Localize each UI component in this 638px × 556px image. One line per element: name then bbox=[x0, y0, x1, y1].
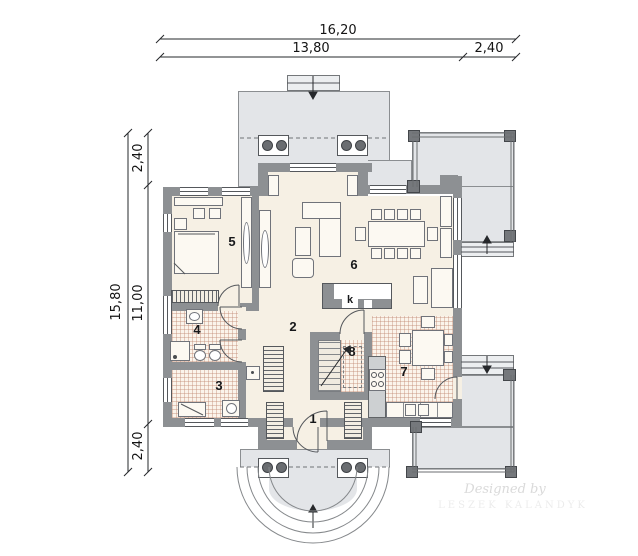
window-west-utility bbox=[163, 378, 172, 402]
dim-top-side: 2,40 bbox=[461, 42, 517, 56]
terrace-tr-post-ne bbox=[504, 130, 516, 142]
dim-top-total: 16,20 bbox=[310, 24, 366, 38]
floor-plan-canvas: 1 2 3 4 5 6 7 8 k 16,20 13,80 2,40 15,80… bbox=[0, 0, 638, 556]
room-label-8: 8 bbox=[344, 345, 360, 359]
terrace-top-right-porch-strip bbox=[368, 160, 412, 187]
utility-counter bbox=[178, 402, 206, 417]
tall-cabinet-living-door bbox=[261, 230, 269, 268]
front-door-opening bbox=[297, 440, 327, 449]
terrace-door-east bbox=[453, 198, 462, 240]
terrace-br-post-w bbox=[410, 421, 422, 433]
porch-column bbox=[262, 462, 273, 473]
dim-left-bottom: 2,40 bbox=[132, 417, 146, 475]
porch-column bbox=[276, 462, 287, 473]
shower-drain bbox=[173, 355, 177, 359]
door-opening-stairblock bbox=[340, 332, 364, 340]
dining-chair-left bbox=[355, 227, 366, 241]
wall-bath-utility bbox=[163, 362, 246, 370]
tv-stand bbox=[413, 276, 428, 304]
terrace-br-post-sw bbox=[406, 466, 418, 478]
floor-bay bbox=[268, 172, 358, 196]
terrace-top-right-steps bbox=[461, 242, 514, 257]
dim-left-top: 2,40 bbox=[132, 129, 146, 187]
radiator-right bbox=[347, 175, 358, 196]
wall-cabinet-2 bbox=[440, 228, 452, 258]
terrace-door-south-bay bbox=[290, 163, 336, 172]
nightstand-1 bbox=[193, 208, 205, 219]
door-opening-bedroom bbox=[218, 303, 240, 311]
room-label-4: 4 bbox=[189, 323, 205, 337]
room-label-6: 6 bbox=[346, 258, 362, 272]
wall-exterior-top-bedroom bbox=[163, 187, 268, 196]
window-west-bedroom bbox=[163, 214, 172, 232]
dining-chair-b3 bbox=[397, 248, 408, 259]
corner-sofa-top bbox=[302, 202, 341, 219]
kitchen-sink-bowl-2 bbox=[418, 404, 429, 416]
kitchen-chair-r2 bbox=[444, 351, 453, 363]
vestibule-closet-left bbox=[266, 402, 284, 439]
porch-column bbox=[355, 462, 366, 473]
window-south-utility-1 bbox=[185, 418, 214, 427]
tall-cabinet-bedroom-door bbox=[243, 222, 250, 264]
room-label-7: 7 bbox=[396, 365, 412, 379]
wall-stairblock-bottom bbox=[310, 392, 372, 400]
fireplace-left-mass bbox=[323, 284, 334, 308]
terrace-bottom-right-lower bbox=[412, 427, 514, 469]
terrace-br-post-ne bbox=[503, 369, 516, 381]
bed bbox=[174, 231, 219, 274]
fireplace-notch-2 bbox=[364, 300, 372, 308]
water-heater-dot bbox=[251, 371, 254, 374]
bedroom-wardrobe bbox=[171, 290, 219, 303]
kitchen-chair-l2 bbox=[399, 350, 411, 364]
armchair bbox=[292, 258, 314, 278]
terrace-tr-post-sw bbox=[407, 180, 420, 193]
window-bedroom-north-1 bbox=[180, 187, 208, 196]
room-label-1: 1 bbox=[305, 412, 321, 426]
porch-column bbox=[341, 140, 352, 151]
dining-chair-t4 bbox=[410, 209, 421, 220]
dining-chair-t1 bbox=[371, 209, 382, 220]
terrace-top-right bbox=[412, 132, 514, 187]
room-label-2: 2 bbox=[285, 320, 301, 334]
bidet-bowl bbox=[209, 350, 221, 361]
dining-chair-right bbox=[427, 227, 438, 241]
stove bbox=[369, 369, 386, 391]
dining-chair-t2 bbox=[384, 209, 395, 220]
dim-left-total: 15,80 bbox=[110, 273, 124, 331]
small-sofa bbox=[431, 268, 453, 308]
door-opening-utility bbox=[238, 340, 246, 362]
terrace-br-post-se bbox=[505, 466, 517, 478]
dining-chair-b4 bbox=[410, 248, 421, 259]
terrace-bottom-right-upper bbox=[461, 375, 514, 427]
wall-cabinet-1 bbox=[440, 196, 452, 227]
toilet-bowl bbox=[194, 350, 206, 361]
dining-chair-b2 bbox=[384, 248, 395, 259]
door-opening-bathroom bbox=[238, 307, 246, 329]
dining-chair-t3 bbox=[397, 209, 408, 220]
porch-column bbox=[355, 140, 366, 151]
fireplace-label: k bbox=[342, 294, 358, 307]
wall-stairblock-left bbox=[310, 332, 318, 400]
kitchen-chair-l1 bbox=[399, 333, 411, 347]
porch-column bbox=[341, 462, 352, 473]
coffee-table bbox=[295, 227, 311, 256]
kitchen-chair-bottom bbox=[421, 368, 435, 380]
terrace-tr-post-nw bbox=[408, 130, 420, 142]
kitchen-table bbox=[412, 330, 444, 366]
dining-table bbox=[368, 221, 425, 247]
kitchen-chair-top bbox=[421, 316, 435, 328]
window-south-utility-2 bbox=[221, 418, 248, 427]
vestibule-closet-right bbox=[344, 402, 362, 439]
bathroom-sink-basin bbox=[189, 312, 200, 321]
porch-column bbox=[276, 140, 287, 151]
corner-sofa-side bbox=[319, 218, 341, 257]
door-opening-kitchen-terrace bbox=[453, 377, 462, 399]
terrace-door-northeast bbox=[370, 185, 406, 194]
kitchen-sink-bowl-1 bbox=[405, 404, 416, 416]
porch-column bbox=[262, 140, 273, 151]
dim-top-main: 13,80 bbox=[283, 42, 339, 56]
dim-left-main: 11,00 bbox=[132, 274, 146, 332]
terrace-tr-post-se bbox=[504, 230, 516, 242]
washing-machine-drum bbox=[226, 403, 237, 414]
nightstand-2 bbox=[209, 208, 221, 219]
wall-bedroom-living bbox=[252, 196, 259, 311]
bedroom-dresser bbox=[174, 197, 223, 206]
window-south-kitchen bbox=[420, 418, 451, 427]
window-east bbox=[453, 255, 462, 308]
staircase bbox=[318, 340, 341, 392]
hall-closet bbox=[263, 346, 284, 392]
watermark-designer-name: LESZEK KALANDYK bbox=[408, 500, 618, 512]
entry-steps-top bbox=[287, 75, 340, 91]
watermark-designed-by: Designed by bbox=[420, 483, 590, 496]
kitchen-chair-r1 bbox=[444, 334, 453, 346]
dining-chair-b1 bbox=[371, 248, 382, 259]
radiator-left bbox=[268, 175, 279, 196]
room-label-3: 3 bbox=[211, 379, 227, 393]
room-label-5: 5 bbox=[224, 235, 240, 249]
window-bedroom-north-2 bbox=[222, 187, 250, 196]
bedroom-side-table bbox=[174, 218, 187, 230]
